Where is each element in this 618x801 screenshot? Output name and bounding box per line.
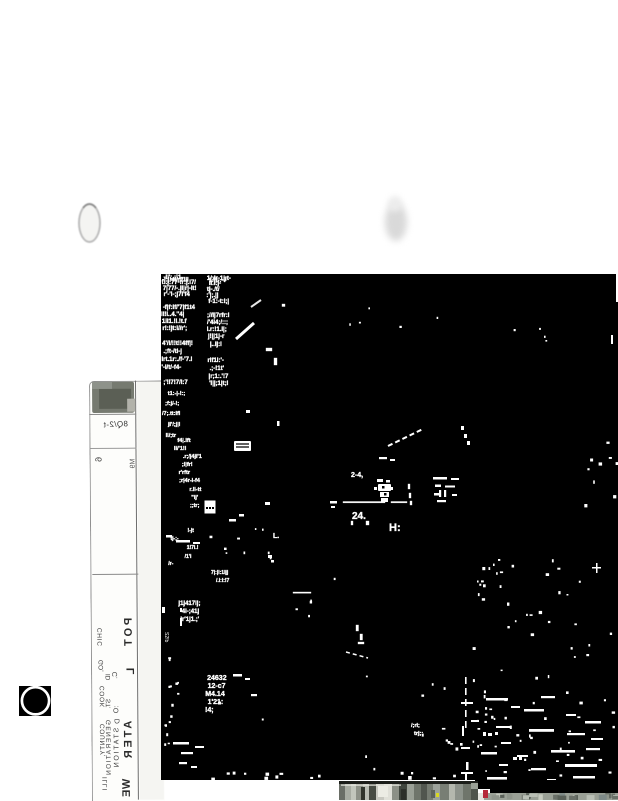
svg-text:/7;.tt:lfl: /7;.tt:lfl <box>162 411 181 417</box>
svg-text:/'4i4;/::;: /'4i4;/::; <box>207 320 228 326</box>
svg-text:7|:|l:1ljj: 7|:|l:1ljj <box>211 570 229 576</box>
svg-text:li!i..4.''4|: li!i..4.''4| <box>161 312 185 318</box>
svg-text:'i||;1|t;i: 'i||;1|t;i <box>209 381 228 387</box>
svg-text:jl'/;j|l: jl'/;j|l <box>167 422 181 428</box>
svg-text:/;ri;: /;ri; <box>411 723 420 729</box>
svg-text:;r|4r-i-f4: ;r|4r-i-f4 <box>179 478 201 484</box>
svg-text:S2!b: S2!b <box>163 632 169 643</box>
svg-text:trj;:: trj;: <box>414 731 423 737</box>
svg-text:1ii1.!i.!t.f: 1ii1.!i.!t.f <box>162 319 188 325</box>
svg-text:.;ft-/ti-j: .;ft-/ti-j <box>163 349 182 355</box>
svg-text:ll/;tr: ll/;tr <box>166 433 177 439</box>
svg-text:24.: 24. <box>352 511 366 522</box>
svg-text:'-l/t/-f4-: '-l/t/-f4- <box>161 365 181 371</box>
svg-text:li/'1!i: li/'1!i <box>174 446 187 452</box>
svg-text:1/jt-.-7: 1/jt-.-7 <box>209 278 227 284</box>
svg-text:''ij': ''ij' <box>191 495 199 501</box>
svg-text:1!7i.!: 1!7i.! <box>187 545 199 551</box>
svg-text:f4|.lft: f4|.lft <box>177 438 190 444</box>
svg-text:rlf1l:'-: rlf1l:'- <box>207 358 223 364</box>
svg-text:H:: H: <box>389 522 401 534</box>
svg-text:i.r:!1.i|;: i.r:!1.i|; <box>207 327 227 333</box>
svg-text:!4;: !4; <box>205 707 214 714</box>
svg-text:;'!l7!7/i:7: ;'!l7!7/i:7 <box>163 380 188 386</box>
svg-text:f-1:-t:l;|: f-1:-t:l;| <box>208 299 229 305</box>
svg-text:/r-: /r- <box>168 561 173 567</box>
svg-text:.;-!1t': .;-!1t' <box>210 366 225 372</box>
svg-text:|r'1j1.;': |r'1j1.;' <box>180 617 199 623</box>
svg-text:/.i:l:!7: /.i:l:!7 <box>216 578 230 584</box>
svg-text:|..ij:i: |..ij:i <box>210 342 222 348</box>
svg-text:;;tr;: ;;tr; <box>190 503 200 509</box>
svg-text:4i-;41j: 4i-;41j <box>182 609 200 615</box>
svg-text:2-4,: 2-4, <box>351 472 363 479</box>
svg-text:;//lj7rfr:i: ;//lj7rfr:i <box>207 313 230 319</box>
svg-text:-|:j!4i/r7lii: -|:j!4i/r7lii <box>162 278 189 284</box>
svg-text:;f:j/-!;: ;f:j/-!; <box>165 401 179 407</box>
svg-text:M4.14: M4.14 <box>205 691 225 698</box>
svg-text:t1:-|-!:;: t1:-|-!:; <box>168 391 186 397</box>
svg-text:r!:!jt:i//r';: r!:!jt:i//r'; <box>162 326 187 332</box>
svg-text:L.: L. <box>273 533 279 540</box>
svg-text:-f|f:lf/'7|f1t4: -f|f:lf/'7|f1t4 <box>163 305 196 311</box>
svg-text:j!|j1j-r: j!|j1j-r <box>207 334 225 340</box>
svg-text:lrt.1r:./f-'7.i: lrt.1r:./f-'7.i <box>162 357 193 363</box>
svg-text:/1'i: /1'i <box>185 554 192 560</box>
svg-text:|r;1:.'!7: |r;1:.'!7 <box>209 374 229 380</box>
svg-text:r'rftr: r'rftr <box>179 470 191 476</box>
svg-text:j1j417lj;: j1j417lj; <box>177 601 200 607</box>
svg-text:r'-'i-;j7i'f4: r'-'i-;j7i'f4 <box>164 292 191 298</box>
svg-text:24632: 24632 <box>207 675 227 682</box>
svg-text:;i|fr!: ;i|fr! <box>182 462 193 468</box>
svg-text:4'/l/!!t!!4ff|!: 4'/l/!!t!!4ff|! <box>162 341 193 347</box>
svg-text:!-jt: !-jt <box>188 528 195 534</box>
svg-text:r.li-tt: r.li-tt <box>189 487 201 493</box>
svg-text:12-c7: 12-c7 <box>208 683 226 690</box>
svg-text:.r;/j4ji'1: .r;/j4ji'1 <box>183 454 202 460</box>
